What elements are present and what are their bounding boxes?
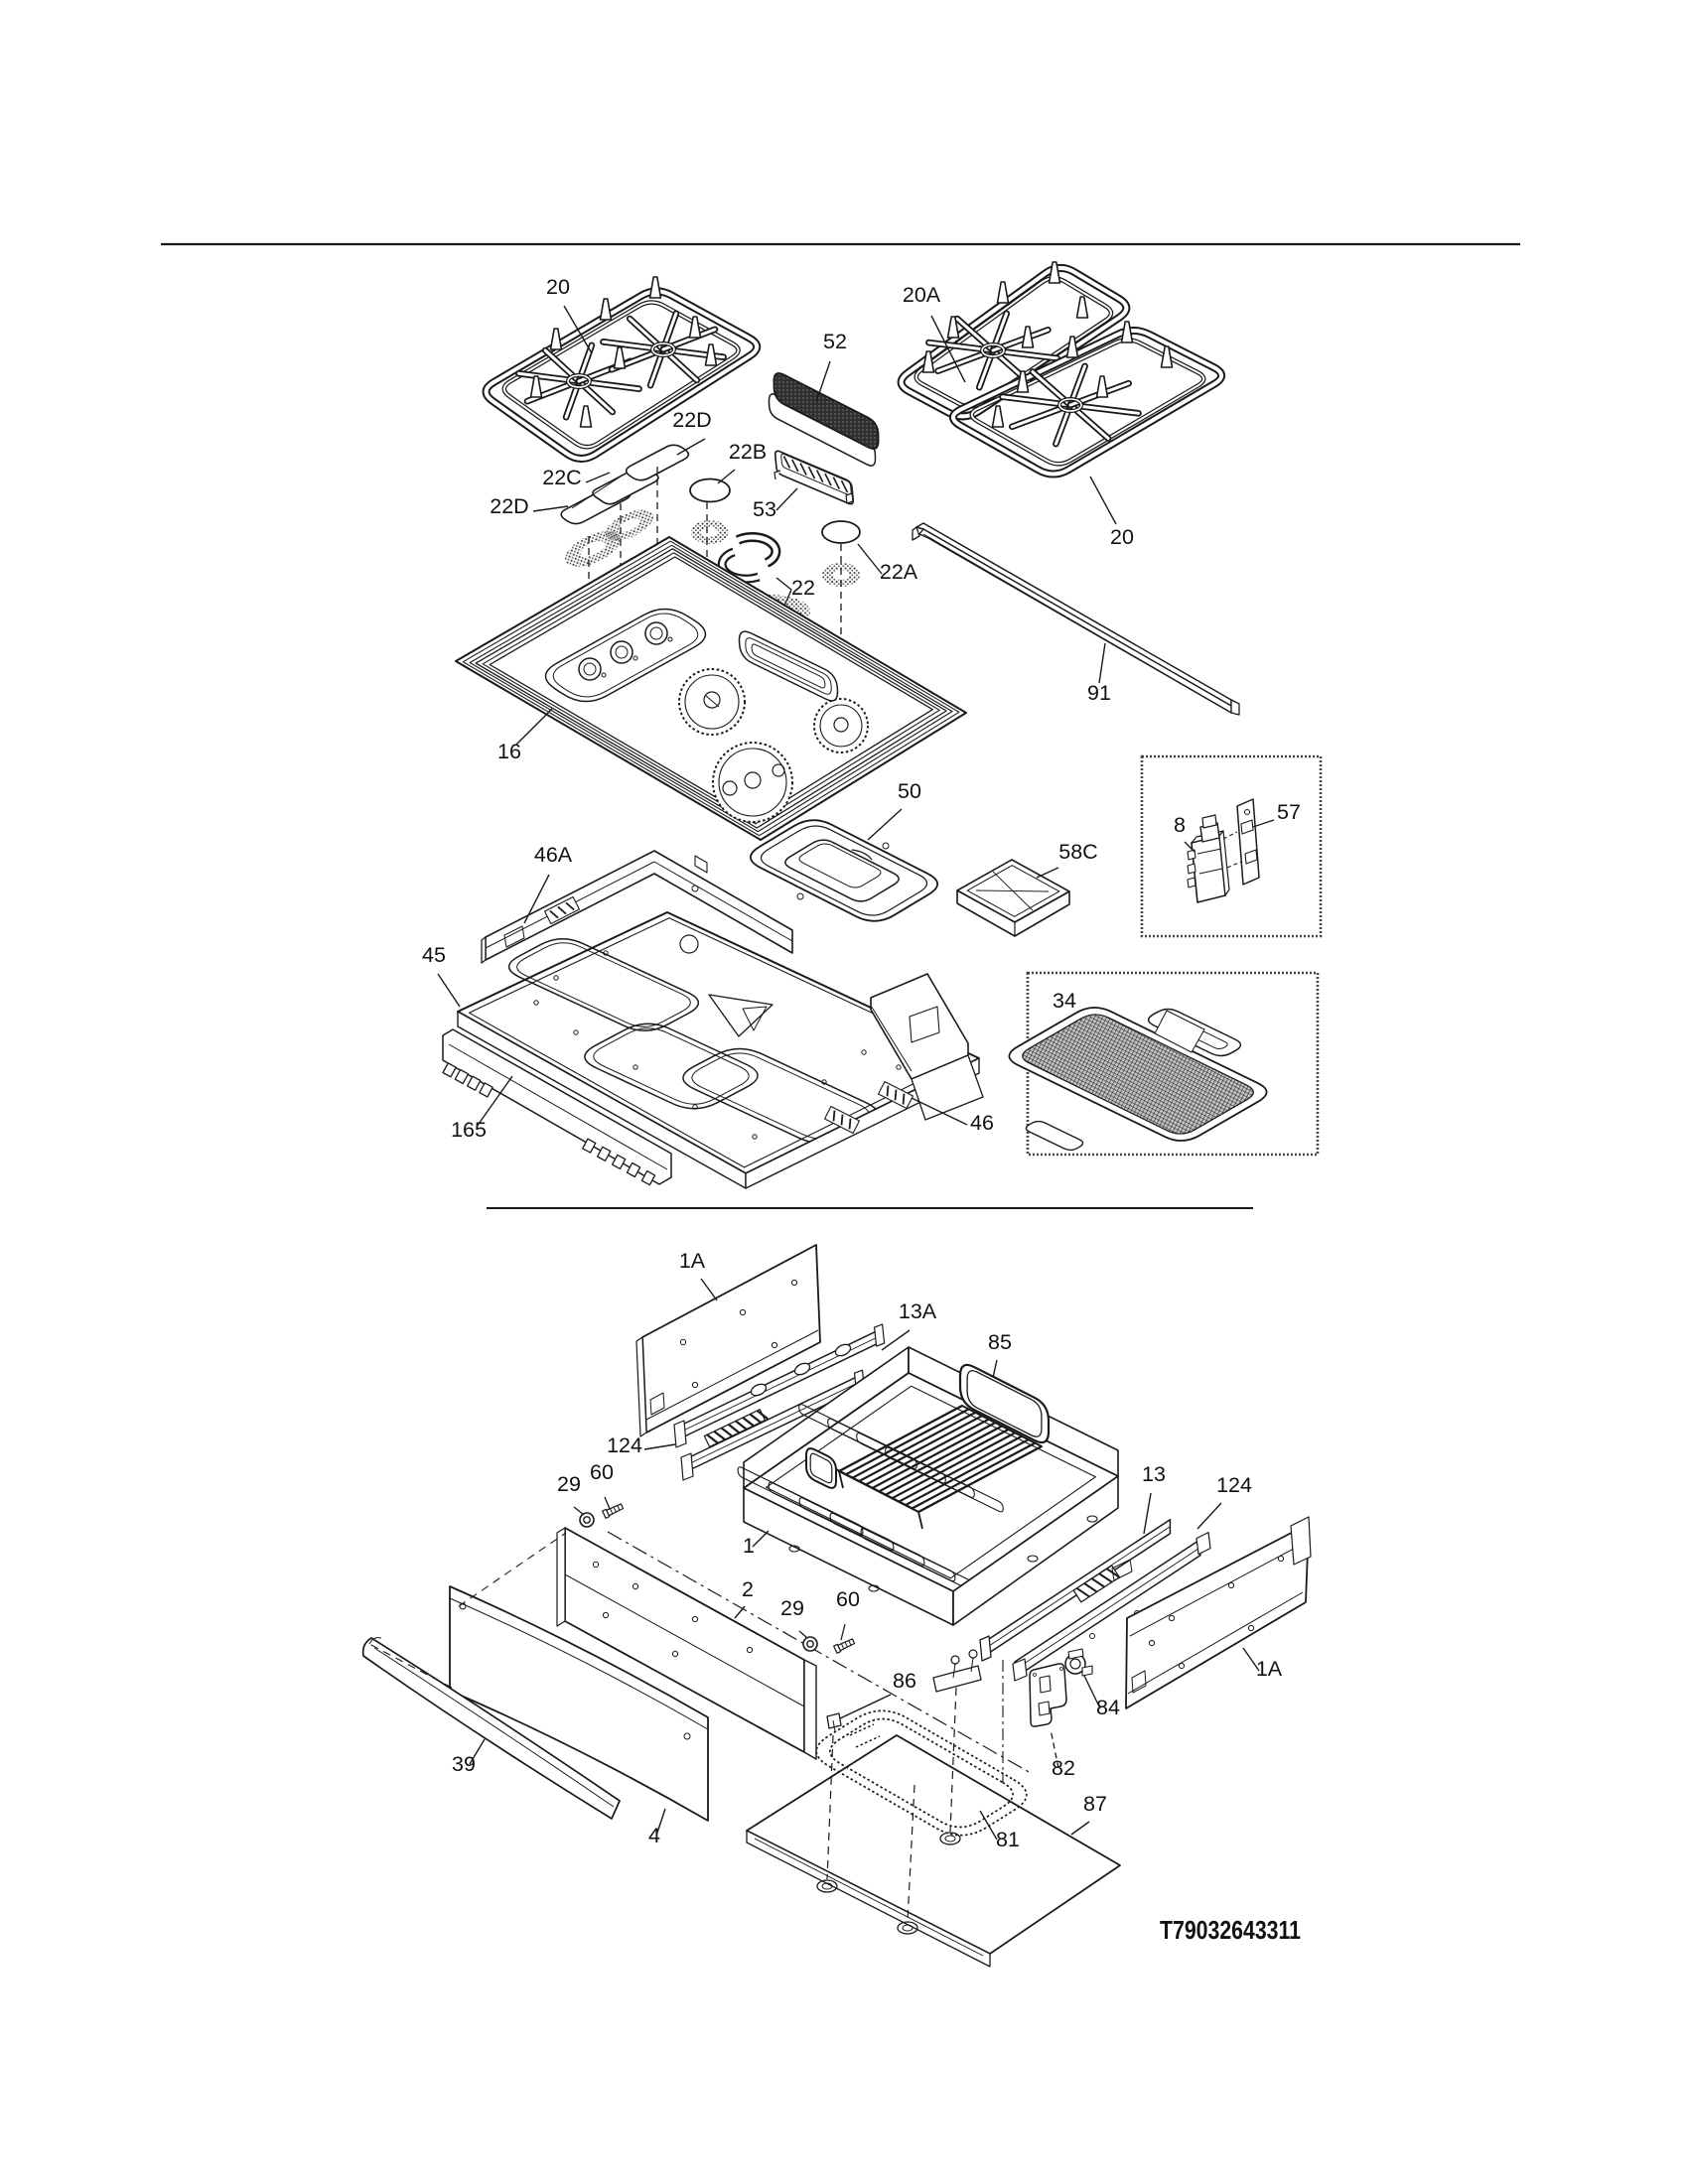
svg-text:20: 20 xyxy=(546,275,570,299)
svg-text:45: 45 xyxy=(422,943,446,967)
svg-text:46: 46 xyxy=(970,1111,994,1135)
svg-text:29: 29 xyxy=(780,1596,804,1620)
svg-text:20A: 20A xyxy=(903,283,941,307)
svg-text:60: 60 xyxy=(590,1460,614,1484)
svg-text:124: 124 xyxy=(607,1433,642,1457)
svg-text:58C: 58C xyxy=(1058,840,1097,864)
svg-text:1A: 1A xyxy=(679,1249,706,1273)
svg-text:87: 87 xyxy=(1083,1792,1107,1816)
svg-text:60: 60 xyxy=(836,1587,860,1611)
svg-text:82: 82 xyxy=(1052,1756,1075,1780)
svg-text:22C: 22C xyxy=(542,466,581,489)
svg-text:39: 39 xyxy=(452,1752,476,1776)
svg-text:1A: 1A xyxy=(1256,1657,1283,1681)
svg-text:85: 85 xyxy=(988,1330,1012,1354)
svg-text:57: 57 xyxy=(1277,800,1301,824)
svg-text:8: 8 xyxy=(1174,813,1186,837)
svg-text:34: 34 xyxy=(1053,989,1076,1013)
svg-text:91: 91 xyxy=(1087,681,1111,705)
svg-text:124: 124 xyxy=(1216,1473,1252,1497)
svg-text:22B: 22B xyxy=(729,440,767,464)
svg-text:13: 13 xyxy=(1142,1462,1166,1486)
svg-text:50: 50 xyxy=(898,779,921,803)
svg-text:29: 29 xyxy=(557,1472,581,1496)
svg-text:22: 22 xyxy=(791,576,815,600)
svg-text:86: 86 xyxy=(893,1669,916,1693)
svg-text:22D: 22D xyxy=(490,494,528,518)
svg-text:13A: 13A xyxy=(899,1299,937,1323)
svg-text:46A: 46A xyxy=(534,843,573,867)
svg-text:22D: 22D xyxy=(672,408,711,432)
svg-text:T79032643311: T79032643311 xyxy=(1160,1915,1301,1945)
svg-text:81: 81 xyxy=(996,1828,1020,1851)
svg-text:20: 20 xyxy=(1110,525,1134,549)
svg-text:53: 53 xyxy=(753,497,776,521)
svg-text:2: 2 xyxy=(742,1577,754,1601)
svg-text:22A: 22A xyxy=(880,560,918,584)
svg-text:52: 52 xyxy=(823,330,847,353)
